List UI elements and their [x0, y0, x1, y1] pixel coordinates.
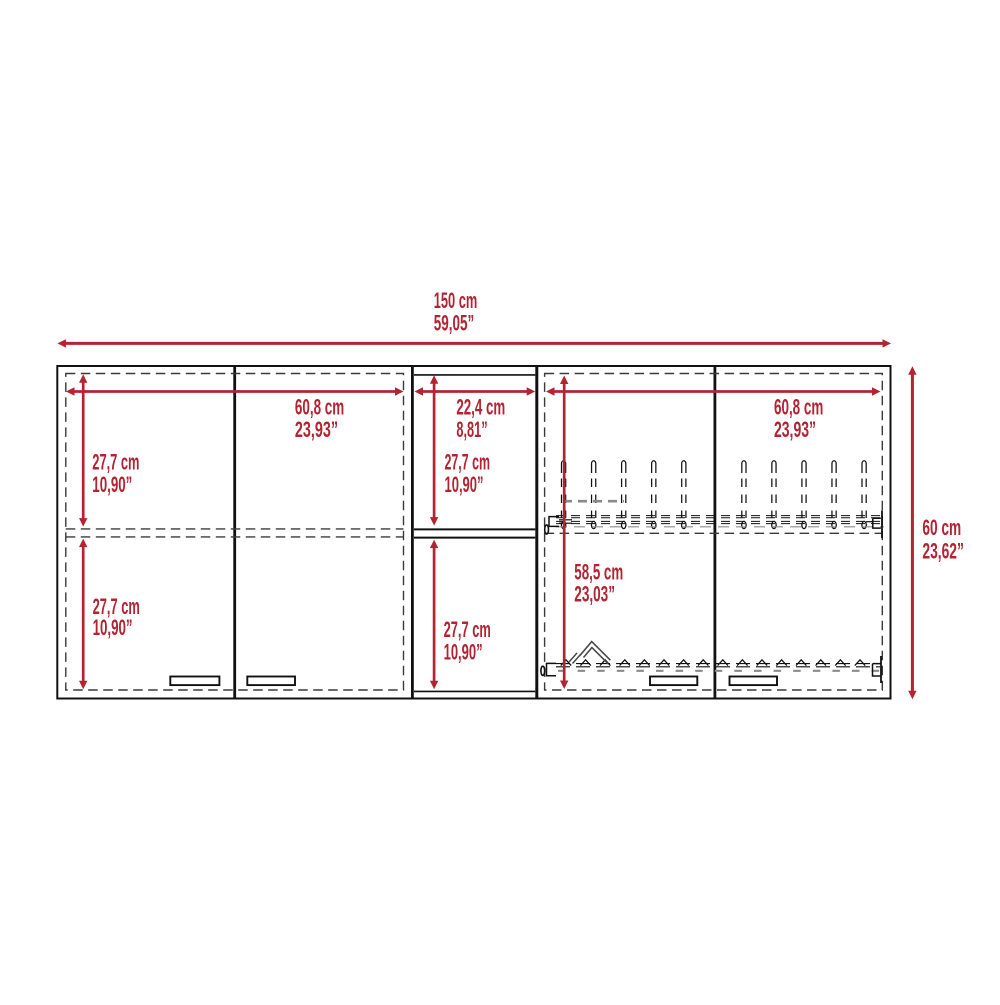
svg-text:60 cm: 60 cm — [922, 515, 961, 540]
svg-text:60,8 cm: 60,8 cm — [295, 395, 344, 420]
svg-text:27,7 cm: 27,7 cm — [444, 617, 491, 642]
svg-text:10,90”: 10,90” — [93, 615, 133, 640]
svg-text:27,7 cm: 27,7 cm — [92, 449, 139, 474]
svg-text:10,90”: 10,90” — [445, 472, 484, 497]
svg-text:22,4 cm: 22,4 cm — [456, 395, 505, 420]
svg-text:59,05”: 59,05” — [434, 310, 475, 335]
svg-text:10,90”: 10,90” — [92, 472, 132, 497]
svg-text:23,93”: 23,93” — [295, 417, 338, 442]
svg-text:8,81”: 8,81” — [456, 417, 487, 442]
svg-text:60,8 cm: 60,8 cm — [774, 395, 823, 420]
svg-text:23,03”: 23,03” — [574, 582, 615, 607]
svg-text:23,62”: 23,62” — [922, 539, 964, 564]
svg-text:150 cm: 150 cm — [434, 288, 478, 313]
svg-text:10,90”: 10,90” — [444, 640, 483, 665]
svg-text:27,7 cm: 27,7 cm — [445, 449, 491, 474]
svg-text:23,93”: 23,93” — [774, 417, 816, 442]
